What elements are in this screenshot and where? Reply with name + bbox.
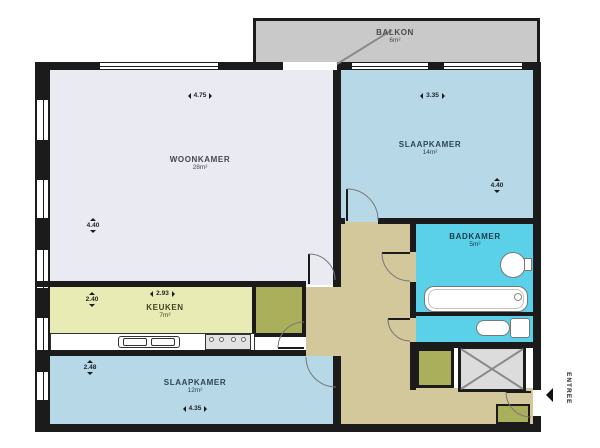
wall-bathroom-wc-divider: [416, 312, 533, 316]
closet-hall: [416, 348, 454, 388]
living-room-area: [50, 70, 335, 285]
window-left-4: [35, 318, 50, 352]
wall-bedroom2-right: [333, 356, 341, 424]
stove-burner-icon: [241, 337, 246, 342]
balcony-area: [253, 18, 540, 66]
entree-door-gap: [533, 390, 541, 416]
bathroom-sink-tap-icon: [524, 258, 532, 271]
kitchen-sink-basin-right: [151, 338, 175, 346]
wall-hall-left: [333, 222, 341, 287]
wall-hall-bathroom-3: [410, 342, 416, 390]
balcony-door-gap: [283, 62, 337, 70]
wall-living-bedroom1: [333, 70, 341, 222]
bedroom1-area: [335, 70, 533, 222]
closet-kitchen: [252, 281, 306, 337]
wall-kitchen-top: [35, 281, 306, 287]
entree-label: ENTREE: [565, 372, 572, 404]
stove-burner-icon: [209, 337, 214, 342]
wall-hall-bathroom-1: [410, 222, 416, 252]
bedroom2-area: [50, 356, 333, 424]
window-left-1: [35, 100, 50, 140]
toilet-tank: [510, 318, 530, 338]
wall-right: [533, 62, 541, 432]
window-living-top: [100, 62, 218, 70]
window-bedroom1-top-right: [444, 62, 522, 70]
window-bedroom1-top-left: [352, 62, 428, 70]
stove-burner-icon: [219, 337, 224, 342]
kitchen-sink-basin-left: [123, 338, 147, 346]
wall-kitchen-bottom: [35, 350, 306, 356]
wall-bottom: [35, 424, 541, 432]
bathroom-sink: [500, 252, 526, 278]
floorplan: BALKON 6m² WOONKAMER 28m² SLAAPKAMER 14m…: [0, 0, 600, 448]
entree-arrow-icon: [546, 388, 553, 402]
closet-entree: [496, 404, 530, 424]
wall-wc-bottom: [416, 342, 533, 348]
bathtub-inner: [428, 289, 524, 309]
wall-bedroom1-bottom-right: [378, 218, 533, 224]
hall-passage-area: [306, 287, 335, 356]
window-left-5: [35, 372, 50, 400]
toilet-bowl: [476, 320, 510, 336]
window-left-2: [35, 180, 50, 218]
bathtub-drain-icon: [514, 293, 522, 301]
shaft: [458, 346, 526, 392]
stove-burner-icon: [231, 337, 236, 342]
